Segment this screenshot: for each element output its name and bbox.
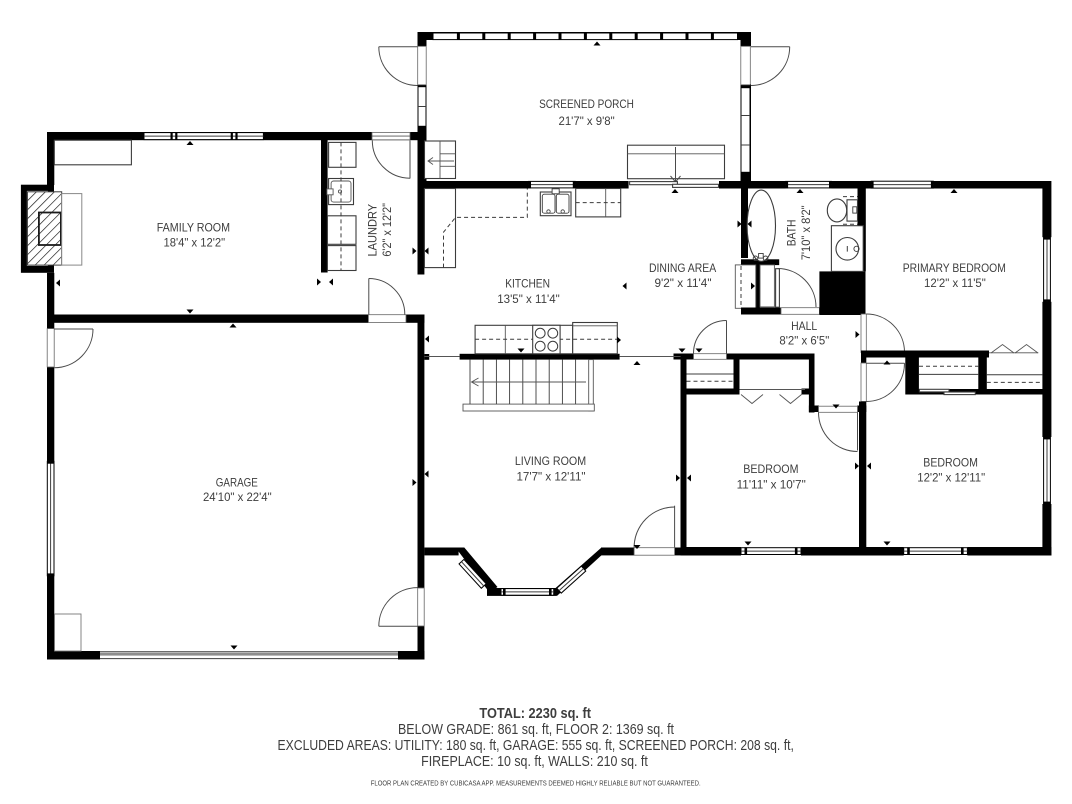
svg-text:FAMILY ROOM: FAMILY ROOM [157,221,230,235]
svg-text:TOTAL: 2230 sq. ft: TOTAL: 2230 sq. ft [479,706,591,722]
svg-text:24'10" x 22'4": 24'10" x 22'4" [203,490,272,504]
svg-text:BEDROOM: BEDROOM [743,462,798,476]
svg-text:SCREENED PORCH: SCREENED PORCH [539,97,634,111]
svg-text:KITCHEN: KITCHEN [505,277,550,291]
svg-text:11'11" x 10'7": 11'11" x 10'7" [737,477,806,491]
svg-text:LAUNDRY: LAUNDRY [365,204,379,257]
svg-text:DINING AREA: DINING AREA [649,261,716,275]
svg-text:FIREPLACE: 10 sq. ft, WALLS: 2: FIREPLACE: 10 sq. ft, WALLS: 210 sq. ft [421,754,648,770]
svg-text:9'2" x 11'4": 9'2" x 11'4" [655,276,712,290]
svg-text:EXCLUDED AREAS: UTILITY: 180 s: EXCLUDED AREAS: UTILITY: 180 sq. ft, GAR… [278,738,794,754]
svg-text:HALL: HALL [791,319,817,333]
svg-text:7'10" x 8'2": 7'10" x 8'2" [799,205,813,260]
svg-text:12'2" x 11'5": 12'2" x 11'5" [924,276,986,290]
svg-text:18'4" x 12'2": 18'4" x 12'2" [164,235,226,249]
svg-text:8'2" x 6'5": 8'2" x 6'5" [779,334,829,348]
svg-text:FLOOR PLAN CREATED BY CUBICASA: FLOOR PLAN CREATED BY CUBICASA APP. MEAS… [371,779,701,788]
svg-text:13'5" x 11'4": 13'5" x 11'4" [497,292,560,306]
svg-text:17'7" x 12'11": 17'7" x 12'11" [517,470,586,484]
svg-text:LIVING ROOM: LIVING ROOM [515,454,586,468]
svg-text:BELOW GRADE: 861 sq. ft, FLOOR: BELOW GRADE: 861 sq. ft, FLOOR 2: 1369 s… [398,722,674,738]
svg-text:21'7" x 9'8": 21'7" x 9'8" [559,114,615,128]
svg-text:BATH: BATH [785,219,799,246]
svg-text:6'2" x 12'2": 6'2" x 12'2" [380,203,394,257]
svg-text:PRIMARY BEDROOM: PRIMARY BEDROOM [903,261,1006,275]
svg-text:GARAGE: GARAGE [216,475,258,489]
svg-text:BEDROOM: BEDROOM [923,455,978,469]
svg-text:12'2" x 12'11": 12'2" x 12'11" [917,471,985,485]
